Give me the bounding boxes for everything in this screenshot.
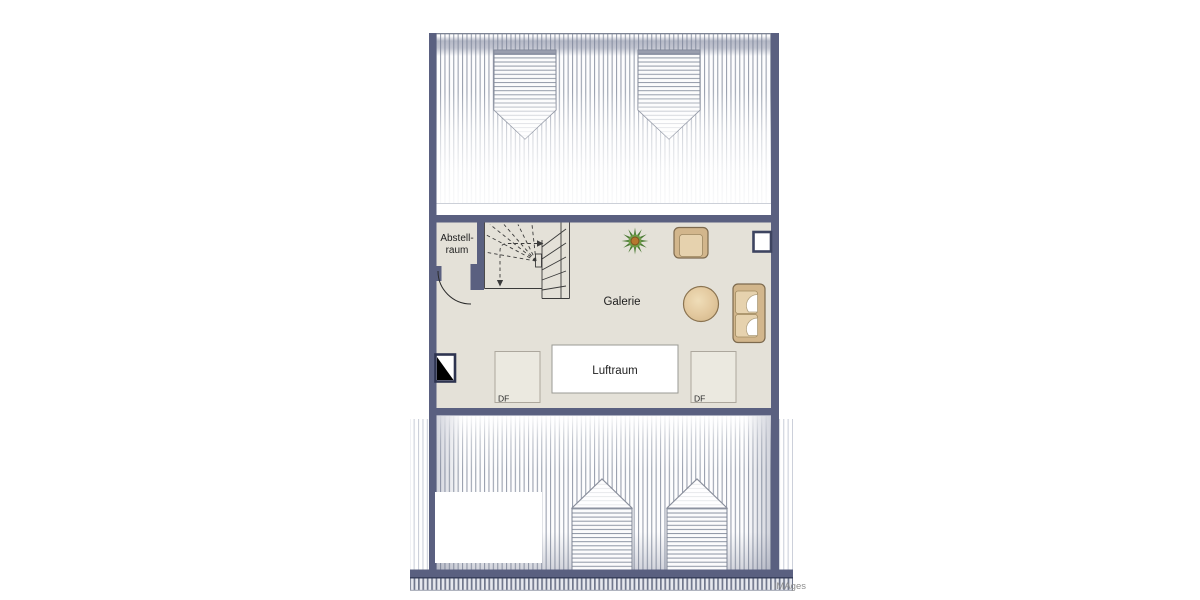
roof-area-bottom	[410, 416, 793, 591]
roof-fade-overlay-bottom	[437, 416, 772, 471]
chimney-icon	[436, 355, 456, 382]
floor-level: Abstell- raum Galerie Luftraum DF DF	[429, 215, 779, 416]
armchair-icon	[674, 228, 708, 259]
roof-fade-overlay	[437, 60, 772, 204]
floor-plan-canvas: Abstell- raum Galerie Luftraum DF DF	[0, 0, 1200, 600]
window-icon	[754, 232, 772, 252]
roof-area-top	[429, 33, 779, 204]
eaves-band	[410, 570, 793, 578]
round-table-icon	[684, 287, 719, 322]
outer-wall-left	[429, 33, 437, 571]
door-jamb-right	[471, 264, 478, 290]
wall-bottom	[429, 408, 779, 416]
outer-wall-right	[771, 33, 779, 571]
ridge-shadow-band	[437, 36, 772, 56]
eaves-line	[410, 577, 793, 579]
roof-overhang-left	[410, 419, 429, 571]
galerie-label: Galerie	[603, 296, 640, 308]
sofa-icon	[733, 284, 765, 343]
luftraum-label: Luftraum	[592, 365, 637, 377]
roof-overhang-right	[779, 419, 793, 571]
abstellraum-label-line2: raum	[446, 245, 469, 256]
wall-top	[429, 215, 779, 223]
watermark-text: IMAges	[774, 581, 806, 592]
roof-bottom-edge	[410, 590, 793, 591]
under-eaves-hatching	[410, 579, 793, 591]
floor-plan-drawing: Abstell- raum Galerie Luftraum DF DF	[0, 0, 1200, 600]
roof-edge-line	[437, 203, 772, 204]
df-label-right: DF	[694, 394, 705, 404]
roof-blank-area	[435, 492, 542, 563]
storage-room-wall	[477, 222, 484, 290]
ridge-line	[429, 33, 779, 34]
df-label-left: DF	[498, 394, 509, 404]
abstellraum-label-line1: Abstell-	[440, 233, 473, 244]
